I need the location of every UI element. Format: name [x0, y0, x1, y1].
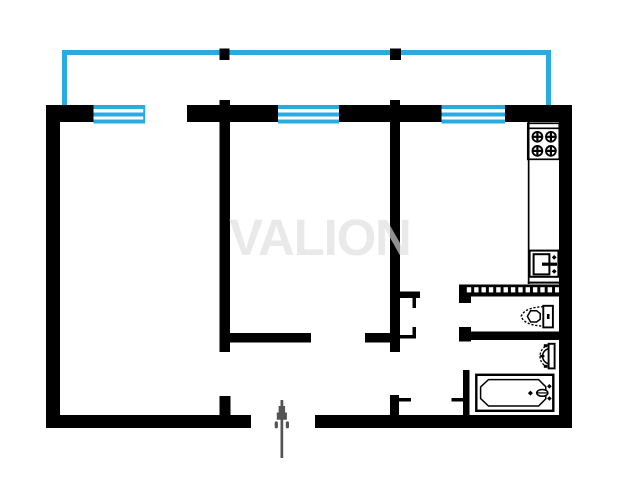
svg-text:VALION: VALION	[229, 209, 411, 266]
